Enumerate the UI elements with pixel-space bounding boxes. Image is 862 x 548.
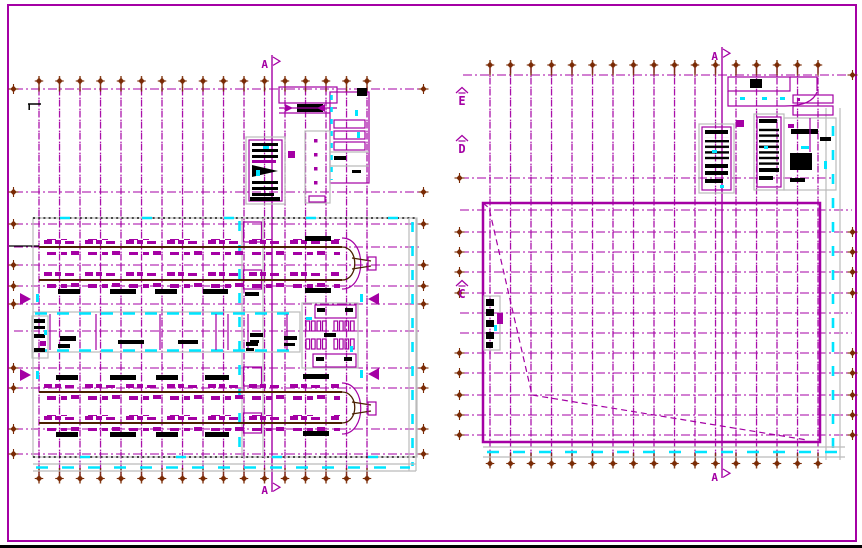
section-flag-icon <box>723 469 730 477</box>
grid-marker-row-top <box>482 60 832 76</box>
grid-marker-row-bottom <box>482 453 832 469</box>
section-flag-icon <box>273 483 280 491</box>
roof-hat-icon <box>456 88 468 94</box>
section-label: A <box>261 58 268 71</box>
elevation-label-c: C <box>458 287 465 301</box>
cad-drawing: A A <box>0 0 862 548</box>
entrance-arrow-icon <box>20 369 31 381</box>
section-flag-icon <box>723 49 730 57</box>
grid-vertical-lines <box>484 66 825 458</box>
section-label: A <box>711 50 718 63</box>
entrance-arrow-icon <box>20 293 31 305</box>
section-label: A <box>261 484 268 497</box>
section-label: A <box>711 471 718 484</box>
elevation-label-e: E <box>458 94 465 108</box>
roof-hat-icon <box>456 281 468 287</box>
grid-marker-row-top <box>30 76 380 92</box>
section-flag-icon <box>273 57 280 65</box>
left-plan: A A <box>9 55 429 497</box>
cad-sheet: A A <box>0 0 862 548</box>
elevation-label-d: D <box>458 142 465 156</box>
elevation-labels: E D C <box>456 88 468 302</box>
roof-hat-icon <box>456 136 468 142</box>
right-plan: A A E D C <box>455 47 858 484</box>
